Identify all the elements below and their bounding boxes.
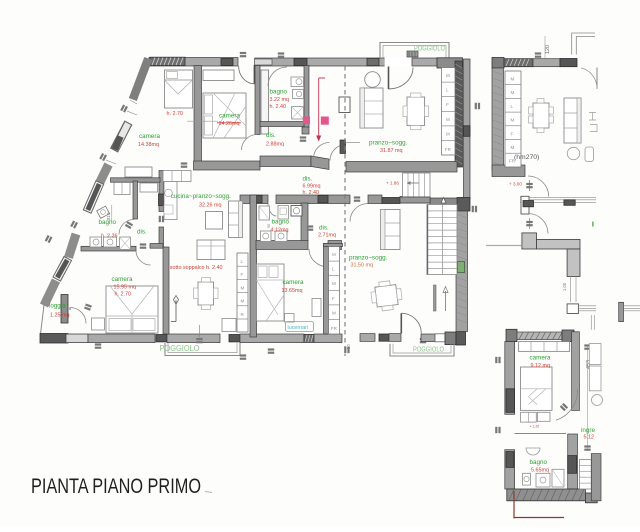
svg-text:cucina~pranzo~sogg.: cucina~pranzo~sogg. <box>171 193 231 200</box>
svg-text:90: 90 <box>346 344 351 349</box>
svg-text:+ 1.20: + 1.20 <box>530 425 540 429</box>
svg-text:4.12mq: 4.12mq <box>271 228 289 234</box>
svg-text:5.65mq: 5.65mq <box>531 468 549 474</box>
svg-text:bagno: bagno <box>530 459 548 466</box>
svg-text:camera: camera <box>112 276 133 283</box>
svg-text:bagno: bagno <box>99 219 117 226</box>
svg-text:3.22 mq: 3.22 mq <box>270 97 289 103</box>
svg-text:camera: camera <box>139 133 160 140</box>
svg-text:pranzo~sogg.: pranzo~sogg. <box>369 139 408 146</box>
svg-text:M: M <box>332 281 336 286</box>
svg-text:2.88mq: 2.88mq <box>266 141 284 147</box>
svg-text:h. 2.40: h. 2.40 <box>270 104 287 110</box>
svg-text:ingre: ingre <box>581 427 595 434</box>
svg-text:31.50 mq: 31.50 mq <box>351 263 373 269</box>
svg-text:+ 1.86: + 1.86 <box>386 180 399 185</box>
svg-text:1.25 mq: 1.25 mq <box>50 313 69 319</box>
svg-text:M: M <box>446 117 450 122</box>
svg-text:M: M <box>332 252 336 257</box>
svg-text:M: M <box>511 118 515 123</box>
svg-text:5.12: 5.12 <box>584 435 595 441</box>
svg-text:sotto soppalco h. 2.40: sotto soppalco h. 2.40 <box>170 265 223 271</box>
svg-text:h. 2.70: h. 2.70 <box>115 292 132 298</box>
svg-text:loggia: loggia <box>49 303 66 310</box>
svg-text:2.71mq: 2.71mq <box>318 233 336 239</box>
svg-text:camera: camera <box>283 279 304 286</box>
svg-text:POGGIOLO: POGGIOLO <box>414 44 445 53</box>
svg-text:dis.: dis. <box>137 229 147 236</box>
svg-text:dis.: dis. <box>266 132 276 139</box>
svg-text:F: F <box>241 272 244 277</box>
svg-text:F: F <box>511 131 514 136</box>
svg-text:1.05: 1.05 <box>562 282 567 291</box>
svg-text:31.87 mq: 31.87 mq <box>380 148 402 154</box>
svg-text:6.99mq: 6.99mq <box>303 184 321 190</box>
svg-text:(hm270): (hm270) <box>514 154 539 161</box>
svg-text:F: F <box>332 296 335 301</box>
svg-text:h. 2.70: h. 2.70 <box>167 111 184 117</box>
svg-text:L: L <box>446 88 449 93</box>
svg-text:L: L <box>241 259 244 264</box>
svg-text:lucernari: lucernari <box>288 325 309 331</box>
svg-text:POGGIOLO: POGGIOLO <box>413 345 444 354</box>
svg-text:FR: FR <box>445 147 452 152</box>
svg-text:32.26 mq: 32.26 mq <box>199 203 221 209</box>
svg-text:M: M <box>446 73 450 78</box>
svg-text:F: F <box>446 102 449 107</box>
svg-text:pranzo~sogg.: pranzo~sogg. <box>349 255 388 262</box>
svg-text:bagno: bagno <box>270 89 288 96</box>
svg-text:M: M <box>511 77 515 82</box>
svg-text:camera: camera <box>219 112 240 119</box>
svg-text:M: M <box>511 90 515 95</box>
svg-text:M: M <box>511 145 515 150</box>
svg-text:9.12 mq: 9.12 mq <box>531 363 550 369</box>
svg-text:M: M <box>332 310 336 315</box>
svg-text:L: L <box>332 267 335 272</box>
svg-text:L: L <box>511 104 514 109</box>
svg-text:h. 2.26: h. 2.26 <box>101 234 118 240</box>
svg-text:POGGIOLO: POGGIOLO <box>160 344 200 353</box>
svg-text:14.38mq: 14.38mq <box>138 142 159 148</box>
svg-text:120: 120 <box>545 45 551 54</box>
svg-text:M: M <box>446 131 450 136</box>
svg-text:FR: FR <box>331 326 338 331</box>
svg-text:dis.: dis. <box>303 176 313 183</box>
svg-text:PIANTA PIANO PRIMO: PIANTA PIANO PRIMO <box>31 474 201 498</box>
svg-text:camera: camera <box>530 355 551 362</box>
svg-text:13.65mq: 13.65mq <box>282 288 303 294</box>
svg-text:15.95 mq: 15.95 mq <box>114 285 136 291</box>
svg-text:+ 3.00: + 3.00 <box>509 182 522 187</box>
svg-text:h. 2.40: h. 2.40 <box>303 190 320 196</box>
svg-text:M: M <box>241 285 245 290</box>
svg-text:bagno: bagno <box>272 219 290 226</box>
svg-text:14.26mq: 14.26mq <box>219 121 240 127</box>
svg-text:dis.: dis. <box>319 225 329 232</box>
svg-text:M: M <box>241 299 245 304</box>
